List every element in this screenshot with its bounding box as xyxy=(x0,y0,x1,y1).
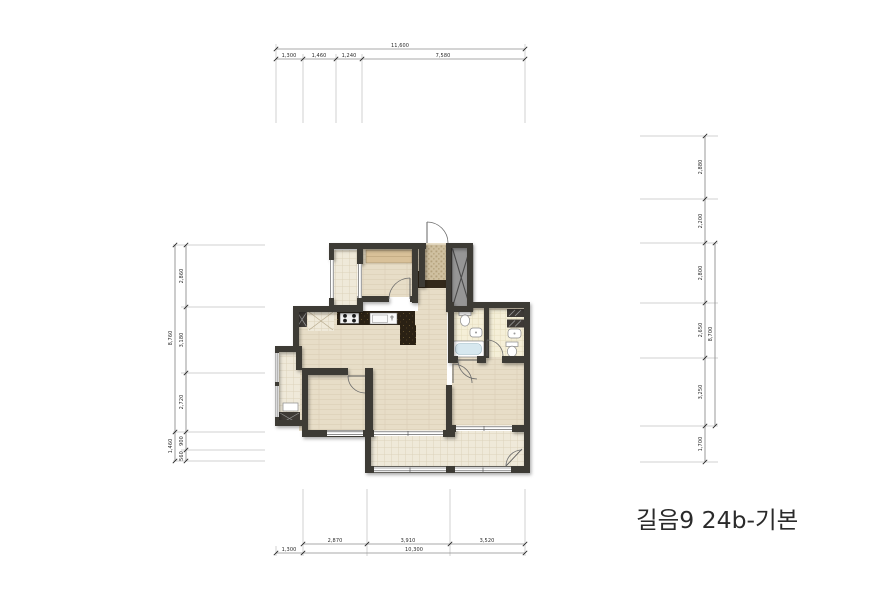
balcony-topleft-floor xyxy=(332,250,358,306)
window-bedroom3-bottom xyxy=(327,431,363,437)
dim-left-seg1: 2,860 xyxy=(179,269,185,284)
dim-left-total: 8,760 xyxy=(168,331,174,346)
dim-bottom-total: 10,300 xyxy=(405,547,423,553)
dim-top-seg1: 1,300 xyxy=(282,53,297,59)
dim-left-seg2: 3,180 xyxy=(179,333,185,348)
entry-floor xyxy=(425,245,446,281)
top-dimension-group: 11,600 1,300 1,460 1,240 7,580 xyxy=(274,43,527,123)
dim-right-seg3: 2,800 xyxy=(698,266,704,281)
balcony-bottom-floor xyxy=(368,432,454,467)
bathtub-icon xyxy=(453,341,484,357)
right-extension-lines xyxy=(640,136,718,462)
window-balcony-bottom xyxy=(374,467,511,472)
floor-plan-page: 11,600 1,300 1,460 1,240 7,580 2,870 3,9… xyxy=(0,0,880,612)
dim-right-seg2: 2,200 xyxy=(698,214,704,229)
left-extension-lines xyxy=(173,245,265,461)
balcony-bottomright-floor xyxy=(452,427,524,467)
dim-bottom-seg2: 3,910 xyxy=(401,538,416,544)
stove-icon xyxy=(340,313,359,324)
dim-left-subtotal: 1,460 xyxy=(168,439,174,454)
bottom-extension-lines xyxy=(276,489,525,556)
window-balcony-topleft xyxy=(330,260,335,298)
dim-top-total: 11,600 xyxy=(391,43,409,49)
shoe-cabinet xyxy=(425,280,447,288)
kitchen-sink-icon xyxy=(370,313,397,324)
dim-left-seg3: 2,720 xyxy=(179,395,185,410)
dim-right-seg1: 2,880 xyxy=(698,160,704,175)
left-dimension-group: 2,860 3,180 2,720 900 560 8,760 1,460 xyxy=(168,243,265,463)
dim-left-sub2: 560 xyxy=(179,451,185,461)
plan-title: 길음9 24b-기본 xyxy=(636,506,798,534)
washer-box xyxy=(283,403,298,411)
dim-bottom-offset: 1,300 xyxy=(282,547,297,553)
dim-right-group-total: 8,700 xyxy=(708,327,714,342)
window-bedroom2-balcony xyxy=(456,426,512,432)
dim-right-seg6: 1,700 xyxy=(698,437,704,452)
washbasin2-icon xyxy=(508,329,521,338)
dim-bottom-seg3: 3,520 xyxy=(480,538,495,544)
dim-top-seg4: 7,580 xyxy=(436,53,451,59)
dim-right-seg4: 2,650 xyxy=(698,323,704,338)
dim-right-seg5: 3,250 xyxy=(698,385,704,400)
dim-left-sub1: 900 xyxy=(179,436,185,446)
dim-bottom-seg1: 2,870 xyxy=(328,538,343,544)
bottom-dimension-group: 2,870 3,910 3,520 1,300 10,300 xyxy=(274,489,527,556)
washbasin1-icon xyxy=(470,328,482,337)
window-bedroom1-divider xyxy=(358,264,363,298)
entry-door xyxy=(427,222,448,243)
window-living-balcony xyxy=(374,431,443,437)
dim-top-seg3: 1,240 xyxy=(342,53,357,59)
floor-plan-drawing: 11,600 1,300 1,460 1,240 7,580 2,870 3,9… xyxy=(0,0,880,612)
floor-plan xyxy=(275,222,530,473)
right-dimension-group: 2,880 2,200 2,800 2,650 3,250 1,700 8,70… xyxy=(640,134,718,464)
dim-top-seg2: 1,460 xyxy=(312,53,327,59)
